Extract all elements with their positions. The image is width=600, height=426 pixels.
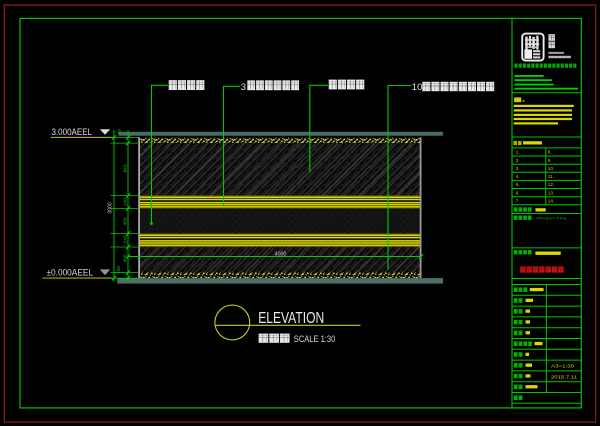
svg-text:1.: 1. bbox=[516, 150, 520, 155]
svg-text:A3=1:30: A3=1:30 bbox=[551, 364, 574, 370]
svg-text:3.000AEEL: 3.000AEEL bbox=[52, 127, 93, 137]
svg-text:3.: 3. bbox=[516, 166, 520, 171]
svg-text:ELEVATION: ELEVATION bbox=[258, 310, 324, 327]
svg-text:840: 840 bbox=[123, 164, 129, 172]
svg-text:7.: 7. bbox=[516, 198, 520, 203]
svg-text:3000: 3000 bbox=[108, 202, 114, 214]
svg-text:5.: 5. bbox=[516, 182, 520, 187]
svg-text:10: 10 bbox=[412, 82, 423, 93]
svg-text:4.: 4. bbox=[516, 174, 520, 179]
svg-text:240: 240 bbox=[123, 235, 129, 243]
svg-text:90: 90 bbox=[117, 129, 123, 135]
svg-text:14.: 14. bbox=[548, 198, 554, 203]
svg-text:6.: 6. bbox=[516, 190, 520, 195]
svg-text:400: 400 bbox=[123, 217, 129, 225]
svg-text:9.: 9. bbox=[548, 158, 552, 163]
svg-text:11.: 11. bbox=[548, 174, 554, 179]
svg-text:12.: 12. bbox=[548, 182, 554, 187]
svg-text:PROJECT TITLE: PROJECT TITLE bbox=[537, 216, 568, 220]
svg-text:±0.000AEEL: ±0.000AEEL bbox=[47, 267, 94, 277]
svg-text:240: 240 bbox=[123, 198, 129, 206]
svg-text:100: 100 bbox=[116, 266, 122, 274]
svg-text:8.: 8. bbox=[548, 150, 552, 155]
svg-text:SCALE 1:30: SCALE 1:30 bbox=[294, 334, 336, 344]
svg-text:3: 3 bbox=[241, 82, 246, 93]
svg-text:13.: 13. bbox=[548, 190, 554, 195]
svg-text:4000: 4000 bbox=[275, 252, 287, 258]
svg-text:10.: 10. bbox=[548, 166, 554, 171]
svg-text:2015.7.11: 2015.7.11 bbox=[551, 374, 577, 380]
svg-text:2.: 2. bbox=[516, 158, 520, 163]
svg-text:400: 400 bbox=[123, 254, 129, 262]
